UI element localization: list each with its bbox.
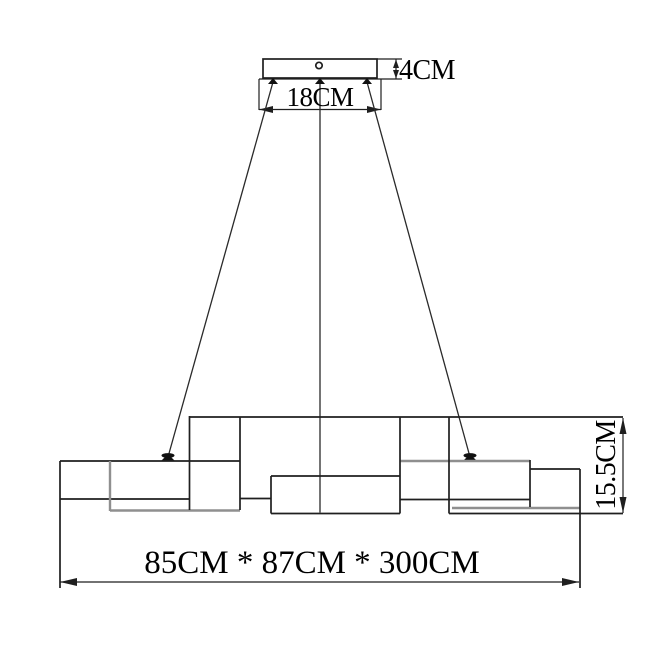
suspension-wire-left (168, 82, 273, 457)
canopy (263, 59, 377, 78)
arrowhead-left-icon (60, 578, 77, 586)
body-pin-left-cap-icon (162, 453, 175, 458)
canopy-height-label: 4CM (399, 57, 455, 85)
body-pin-right-cap-icon (464, 453, 477, 458)
dimension-drawing: 18CM 4CM 15.5CM 85CM * 87CM * 300CM (0, 0, 668, 668)
suspension-wire-right (367, 82, 470, 457)
body-height-label: 15.5CM (593, 405, 621, 525)
mounting-hole-icon (316, 62, 322, 68)
overall-size-label: 85CM * 87CM * 300CM (92, 547, 532, 580)
canopy-width-label: 18CM (270, 84, 370, 111)
suspension-wires (161, 78, 477, 513)
arrowhead-right-icon (562, 578, 579, 586)
